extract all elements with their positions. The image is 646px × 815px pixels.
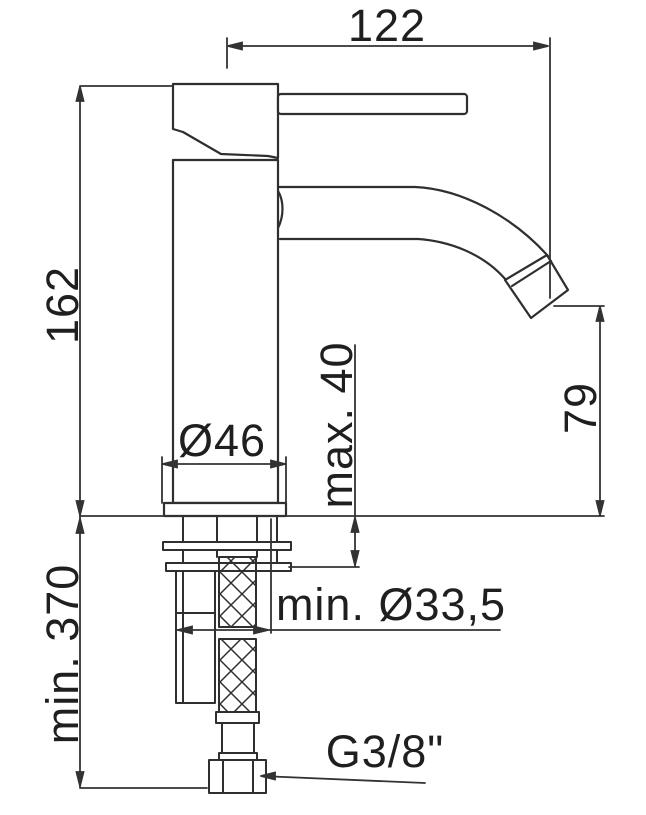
arrow-down-icon (352, 551, 359, 565)
label-spout-reach: 122 (348, 0, 426, 51)
flex-hose-braid-lower (219, 639, 256, 712)
label-max-mounting-thickness: max. 40 (311, 341, 362, 508)
spout-lower-curve (280, 239, 506, 280)
handle-head-outline (173, 84, 278, 158)
arrow-up-icon (77, 87, 84, 101)
connection-hex-nut (209, 760, 266, 793)
label-base-diameter: Ø46 (178, 415, 266, 466)
arrow-down-icon (597, 501, 604, 515)
dimension-labels: 122 162 min. 370 Ø46 max. 40 79 min. Ø33… (37, 0, 606, 777)
hose-end-tube (222, 723, 254, 753)
hose-end-collar (219, 753, 257, 760)
flex-hose-braid-upper (219, 557, 256, 627)
shank-outer-walls (183, 516, 277, 563)
label-thread: G3/8" (326, 726, 445, 777)
dimension-162 (77, 86, 174, 516)
arrow-left-icon (228, 43, 242, 50)
technical-drawing-page: 122 162 min. 370 Ø46 max. 40 79 min. Ø33… (0, 0, 646, 815)
faucet-technical-drawing: 122 162 min. 370 Ø46 max. 40 79 min. Ø33… (0, 0, 646, 815)
arrow-right-icon (534, 43, 548, 50)
base-flange-outline (164, 503, 286, 516)
aerator-outline (505, 255, 568, 318)
fixing-stud-outline (176, 571, 215, 703)
arrow-up-icon (597, 307, 604, 321)
arrow-right-icon (254, 627, 268, 634)
handle-lever-outline (278, 94, 467, 114)
arrow-right-icon (271, 461, 285, 468)
arrow-down-icon (77, 501, 84, 515)
spout-upper-curve (278, 187, 548, 256)
label-spout-outlet-height: 79 (555, 382, 606, 434)
label-total-height: 162 (37, 266, 88, 344)
arrow-up-icon (77, 519, 84, 533)
hose-ferrule (216, 712, 259, 723)
arrow-up-icon (352, 518, 359, 532)
arrow-down-icon (77, 772, 84, 786)
arrow-left-icon (163, 461, 177, 468)
label-min-hole-diameter: min. Ø33,5 (276, 579, 506, 630)
label-hose-min-length: min. 370 (37, 564, 88, 745)
